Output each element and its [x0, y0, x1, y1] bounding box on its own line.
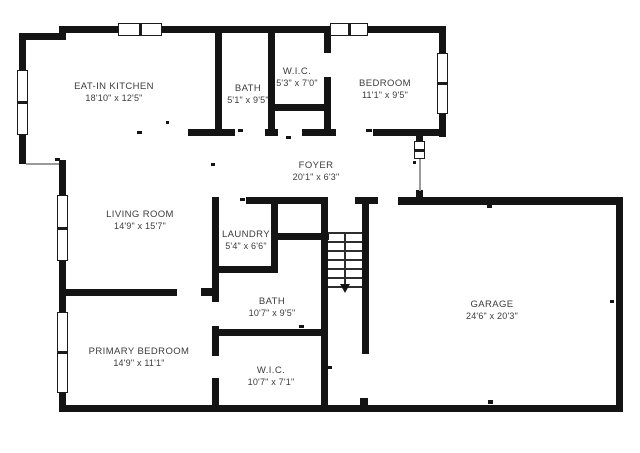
wall-tick — [211, 163, 215, 166]
room-label-bath-lower: BATH 10'7" x 9'5" — [249, 296, 296, 318]
window — [414, 141, 425, 159]
room-dims: 20'1" x 6'3" — [293, 172, 340, 182]
room-label-wic-lower: W.I.C. 10'7" x 7'1" — [248, 365, 295, 387]
wall — [19, 33, 66, 40]
window — [118, 23, 162, 36]
window — [437, 53, 448, 114]
wall — [373, 129, 446, 136]
room-dims: 14'9" x 11'1" — [113, 358, 164, 368]
opening-line — [419, 158, 421, 191]
window — [330, 23, 368, 36]
wall — [416, 190, 423, 205]
room-dims: 10'7" x 7'1" — [248, 377, 295, 387]
wall — [201, 288, 219, 296]
opening-line — [26, 163, 59, 165]
room-name: LAUNDRY — [222, 229, 270, 240]
wall — [212, 266, 278, 273]
wall-tick — [328, 366, 332, 369]
wall — [321, 197, 328, 405]
wall-tick — [360, 398, 368, 405]
window — [57, 195, 68, 261]
room-name: BEDROOM — [359, 78, 411, 89]
wall-tick — [286, 136, 291, 139]
wall — [212, 329, 321, 336]
window — [57, 312, 68, 393]
wall-tick — [166, 121, 169, 124]
wall-tick — [299, 325, 304, 328]
wall — [188, 129, 235, 136]
floor-plan: EAT-IN KITCHEN 18'10" x 12'5" BATH 5'1" … — [0, 0, 640, 453]
room-dims: 24'6" x 20'3" — [466, 311, 518, 321]
room-name: BATH — [259, 296, 285, 307]
wall-tick — [240, 198, 245, 201]
room-label-wic-upper: W.I.C. 5'3" x 7'0" — [276, 66, 318, 88]
wall-tick — [487, 205, 492, 208]
room-dims: 5'4" x 6'6" — [225, 241, 267, 251]
wall — [212, 197, 219, 273]
room-dims: 5'3" x 7'0" — [276, 78, 318, 88]
window — [17, 70, 28, 135]
room-dims: 5'1" x 9'5" — [227, 95, 269, 105]
room-name: EAT-IN KITCHEN — [74, 81, 154, 92]
wall — [268, 104, 331, 111]
wall-tick — [366, 129, 372, 132]
wall — [616, 197, 623, 412]
wall — [59, 405, 623, 412]
stair-rail — [344, 232, 346, 284]
wall — [398, 197, 623, 205]
room-name: W.I.C. — [257, 365, 285, 376]
room-label-primary-bedroom: PRIMARY BEDROOM 14'9" x 11'1" — [89, 346, 190, 368]
room-label-eat-in-kitchen: EAT-IN KITCHEN 18'10" x 12'5" — [74, 81, 154, 103]
wall — [362, 197, 369, 354]
room-name: BATH — [235, 83, 261, 94]
wall — [268, 26, 275, 136]
wall — [246, 197, 322, 204]
room-dims: 11'1" x 9'5" — [362, 90, 408, 100]
wall-tick — [413, 161, 416, 164]
wall-tick — [488, 400, 493, 404]
wall — [302, 129, 336, 136]
wall-tick — [137, 131, 142, 134]
stair-direction-arrow — [340, 284, 350, 293]
room-label-foyer: FOYER 20'1" x 6'3" — [293, 160, 340, 182]
room-name: W.I.C. — [283, 66, 311, 77]
wall — [59, 289, 177, 296]
room-label-living-room: LIVING ROOM 14'9" x 15'7" — [106, 209, 174, 231]
room-name: PRIMARY BEDROOM — [89, 346, 190, 357]
wall — [215, 26, 222, 136]
wall-tick — [238, 129, 243, 132]
wall — [265, 129, 278, 136]
room-dims: 10'7" x 9'5" — [249, 308, 296, 318]
room-name: FOYER — [299, 160, 334, 171]
room-label-garage: GARAGE 24'6" x 20'3" — [466, 299, 518, 321]
wall-tick — [55, 158, 60, 161]
wall — [212, 378, 219, 405]
room-dims: 14'9" x 15'7" — [114, 221, 166, 231]
room-dims: 18'10" x 12'5" — [85, 93, 142, 103]
room-label-laundry: LAUNDRY 5'4" x 6'6" — [222, 229, 270, 251]
room-name: GARAGE — [470, 299, 513, 310]
wall-tick — [610, 300, 614, 303]
room-label-bath-upper: BATH 5'1" x 9'5" — [227, 83, 269, 105]
room-name: LIVING ROOM — [106, 209, 174, 220]
room-label-bedroom: BEDROOM 11'1" x 9'5" — [359, 78, 411, 100]
